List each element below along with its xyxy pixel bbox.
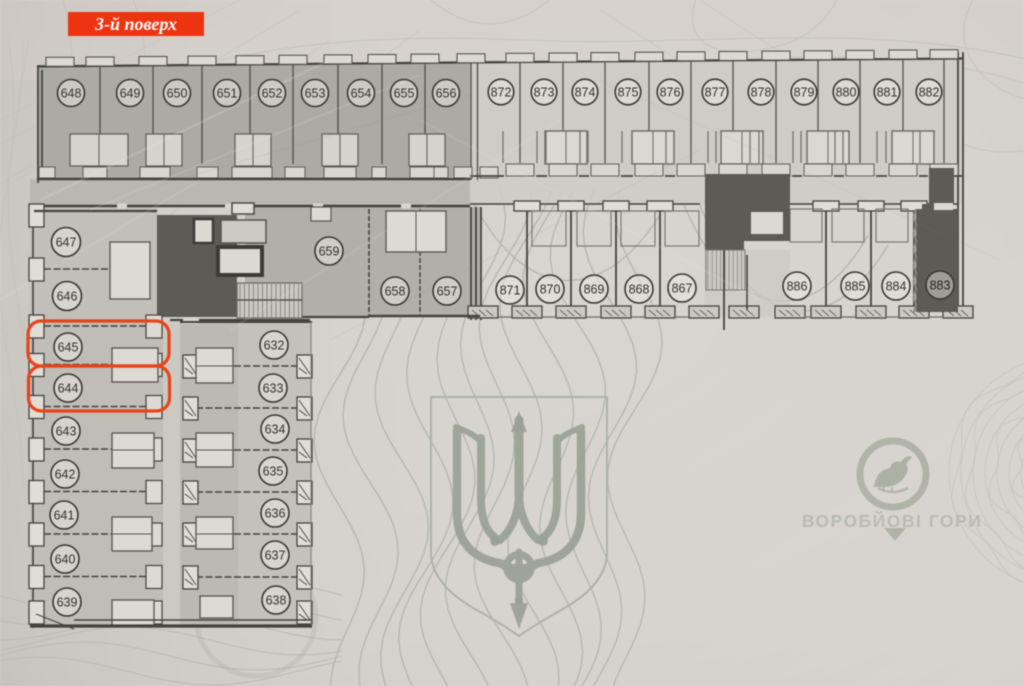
svg-text:877: 877 [705, 86, 726, 100]
svg-text:881: 881 [877, 86, 898, 100]
svg-text:635: 635 [263, 465, 284, 479]
svg-text:651: 651 [217, 87, 238, 101]
svg-text:642: 642 [55, 468, 76, 482]
svg-text:656: 656 [436, 87, 457, 101]
svg-text:870: 870 [540, 283, 561, 297]
svg-text:883: 883 [930, 279, 951, 293]
svg-text:880: 880 [836, 86, 857, 100]
svg-text:886: 886 [787, 280, 808, 294]
svg-text:876: 876 [660, 86, 681, 100]
svg-text:884: 884 [886, 280, 907, 294]
svg-text:648: 648 [61, 87, 82, 101]
svg-text:885: 885 [845, 280, 866, 294]
svg-text:659: 659 [319, 245, 340, 259]
svg-text:ВОРОБЙОВІ ГОРИ: ВОРОБЙОВІ ГОРИ [802, 510, 983, 531]
svg-text:879: 879 [794, 86, 815, 100]
svg-text:638: 638 [266, 594, 287, 608]
svg-text:873: 873 [534, 86, 555, 100]
svg-text:633: 633 [263, 382, 284, 396]
svg-text:639: 639 [57, 596, 78, 610]
svg-text:645: 645 [58, 341, 79, 355]
svg-text:874: 874 [575, 86, 596, 100]
svg-text:647: 647 [56, 236, 77, 250]
svg-text:658: 658 [385, 285, 406, 299]
svg-text:634: 634 [265, 423, 286, 437]
svg-text:872: 872 [491, 86, 512, 100]
svg-text:868: 868 [629, 283, 650, 297]
svg-text:655: 655 [394, 87, 415, 101]
svg-text:882: 882 [919, 86, 940, 100]
svg-text:632: 632 [264, 339, 285, 353]
svg-text:640: 640 [55, 553, 76, 567]
svg-text:641: 641 [54, 509, 75, 523]
svg-text:644: 644 [58, 382, 79, 396]
svg-text:867: 867 [672, 282, 693, 296]
svg-text:637: 637 [265, 549, 286, 563]
svg-text:652: 652 [262, 87, 283, 101]
svg-text:654: 654 [351, 87, 372, 101]
svg-text:871: 871 [500, 284, 521, 298]
svg-text:643: 643 [56, 425, 77, 439]
svg-text:3-й поверх: 3-й поверх [94, 14, 177, 34]
svg-text:869: 869 [584, 283, 605, 297]
svg-text:646: 646 [57, 290, 78, 304]
svg-text:875: 875 [618, 86, 639, 100]
svg-text:878: 878 [751, 86, 772, 100]
svg-text:650: 650 [167, 87, 188, 101]
svg-text:636: 636 [265, 507, 286, 521]
svg-text:649: 649 [120, 87, 141, 101]
svg-text:653: 653 [305, 87, 326, 101]
svg-text:657: 657 [437, 285, 458, 299]
